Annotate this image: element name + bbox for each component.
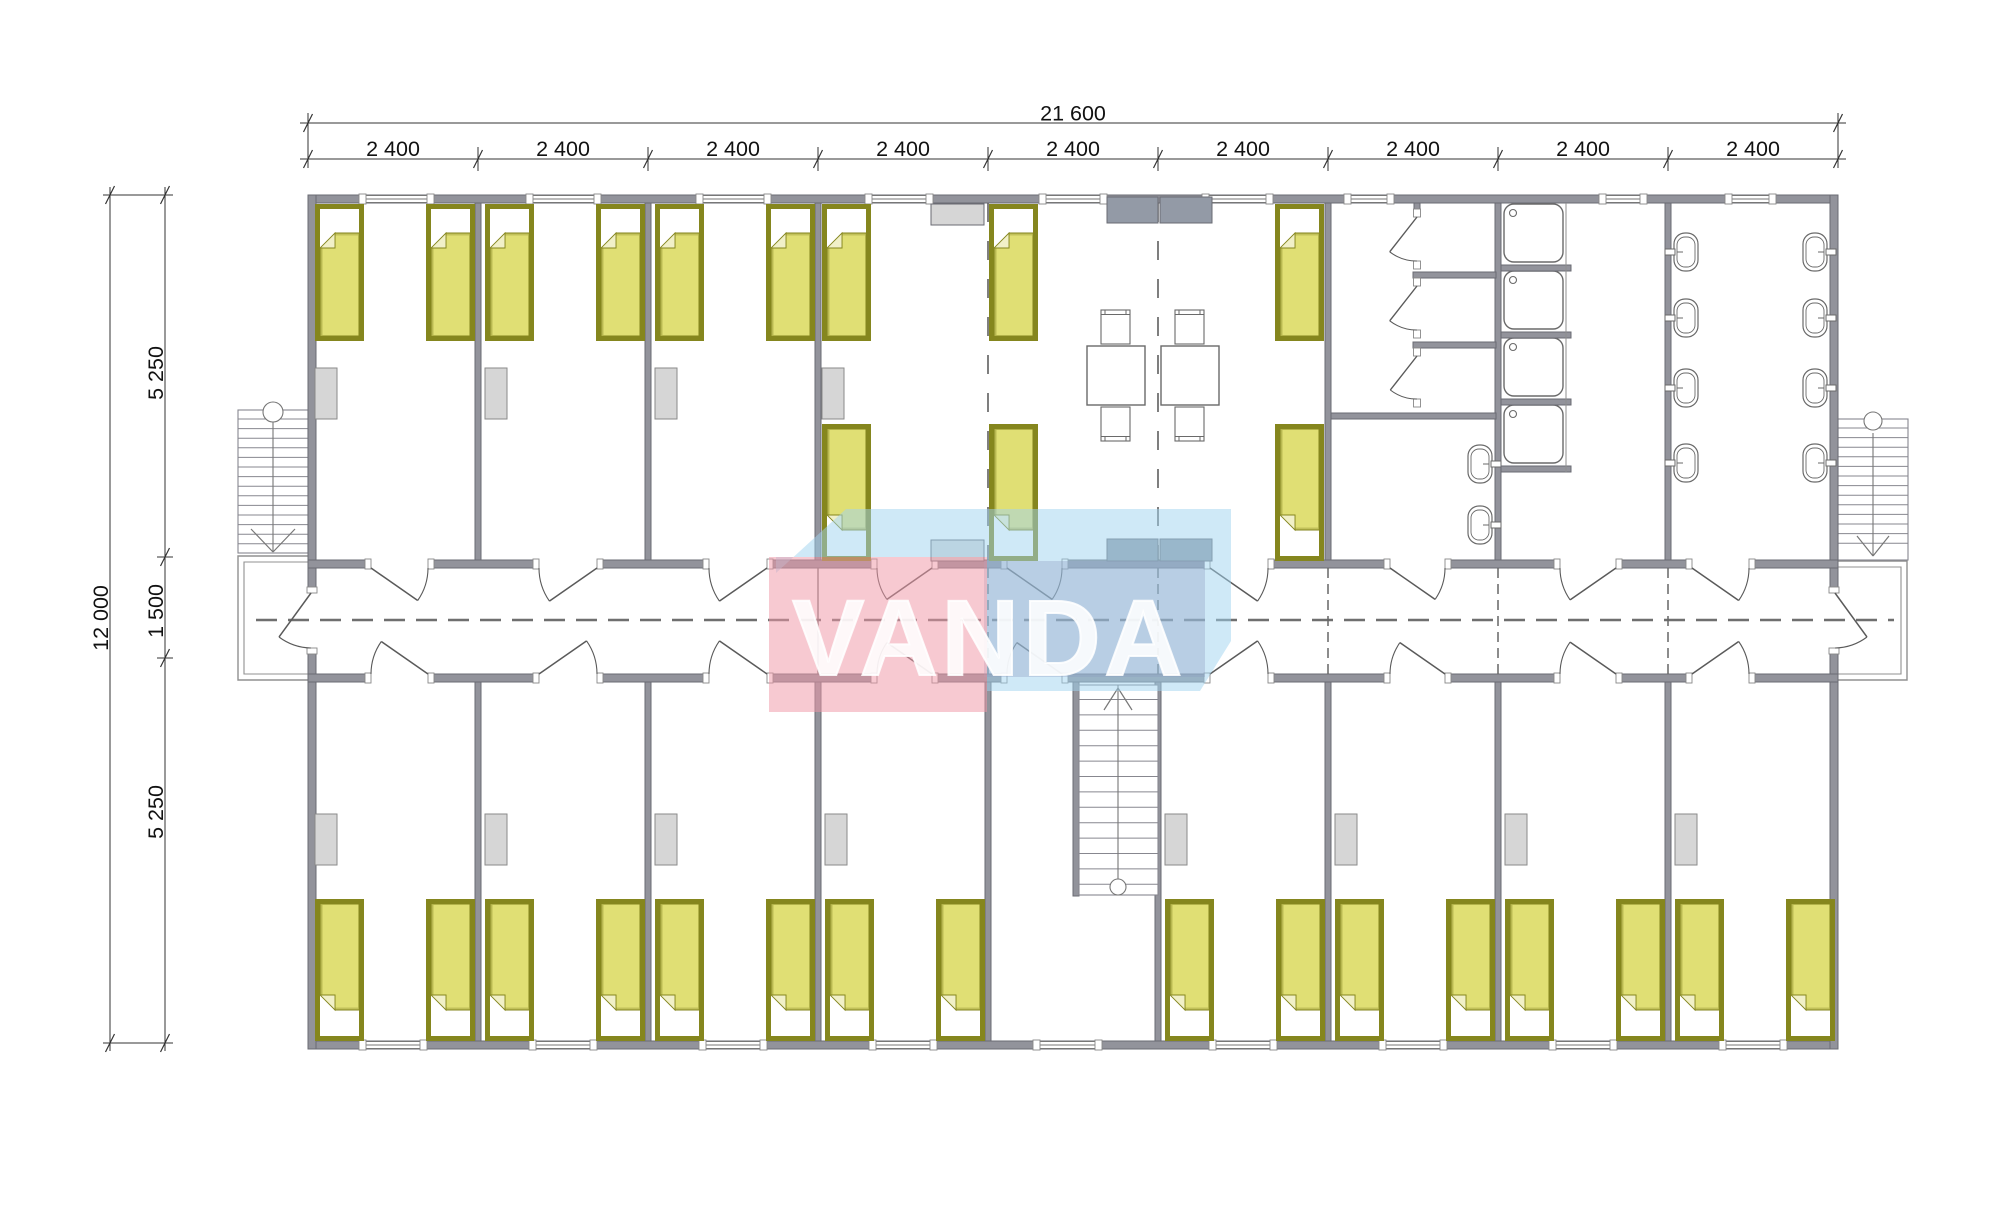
svg-text:2 400: 2 400 xyxy=(536,137,590,161)
svg-text:1 500: 1 500 xyxy=(144,584,168,638)
svg-text:2 400: 2 400 xyxy=(1556,137,1610,161)
svg-text:5 250: 5 250 xyxy=(144,785,168,839)
svg-text:2 400: 2 400 xyxy=(1386,137,1440,161)
svg-text:2 400: 2 400 xyxy=(1216,137,1270,161)
svg-text:2 400: 2 400 xyxy=(366,137,420,161)
svg-text:5 250: 5 250 xyxy=(144,346,168,400)
svg-text:2 400: 2 400 xyxy=(706,137,760,161)
svg-text:2 400: 2 400 xyxy=(1046,137,1100,161)
svg-text:21 600: 21 600 xyxy=(1040,102,1106,126)
svg-text:2 400: 2 400 xyxy=(876,137,930,161)
svg-text:12 000: 12 000 xyxy=(89,585,113,651)
svg-text:VANDA: VANDA xyxy=(792,577,1186,698)
svg-text:2 400: 2 400 xyxy=(1726,137,1780,161)
